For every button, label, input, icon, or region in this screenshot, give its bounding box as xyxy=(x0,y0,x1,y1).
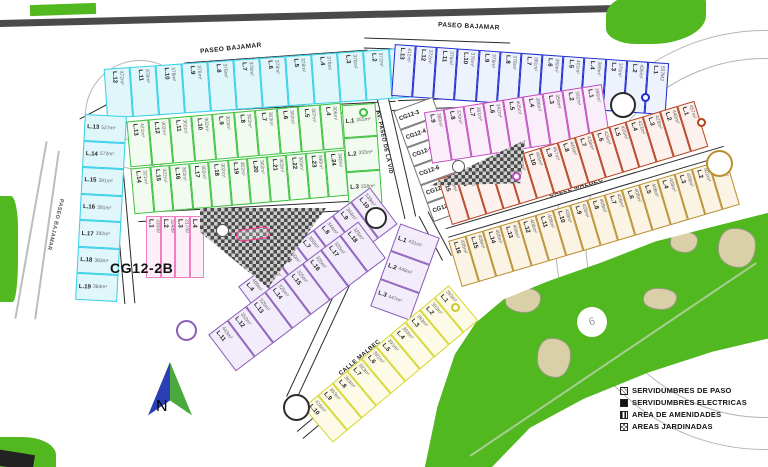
amenities-west-circle xyxy=(216,224,229,237)
lot-area: 378m² xyxy=(247,62,253,77)
lot-area: 302m² xyxy=(203,117,209,132)
lot-area: 391m² xyxy=(98,179,112,185)
lot-area: 380m² xyxy=(435,113,442,128)
lot-area: 370m² xyxy=(616,63,622,78)
marker-dot-yellow xyxy=(451,303,460,312)
sand-bunker-2 xyxy=(643,288,677,310)
lot-area: 378m² xyxy=(299,58,305,73)
lot-number: L.7 xyxy=(260,112,267,121)
legend-label: AREAS JARDINADAS xyxy=(632,422,713,431)
lot-number: L.2 xyxy=(162,219,168,228)
lot-area: 381m² xyxy=(532,57,538,72)
lot-area: 340m² xyxy=(336,153,342,168)
lot-number: L.11 xyxy=(174,120,181,132)
lot-area: 361m² xyxy=(475,107,482,122)
lot: L.1557M2 xyxy=(644,62,669,115)
lot-number: L.10 xyxy=(163,67,170,79)
lot: L.3317m² xyxy=(175,216,190,278)
culdesac-malbec-east xyxy=(706,150,733,177)
hatch-vertical-swatch-icon xyxy=(620,411,628,419)
north-arrow-right-blade xyxy=(170,362,192,424)
lot: L.11378m² xyxy=(130,65,159,117)
lot-number: L.9 xyxy=(189,66,196,75)
lot-number: L.3 xyxy=(176,219,182,228)
lot-area: 383m² xyxy=(94,258,108,264)
lot: L.14572m² xyxy=(82,141,125,170)
culdesac-pinot-west xyxy=(176,320,197,341)
lot-area: 302m² xyxy=(245,114,251,129)
lot-area: 355m² xyxy=(359,151,374,157)
lot-area: 389m² xyxy=(595,61,601,76)
lot-number: L.16 xyxy=(83,204,95,211)
golf-hole-number: 6 xyxy=(587,315,597,328)
lot: L.3378m² xyxy=(337,51,366,103)
block-green-east-column: L.1355m²L.2355m²L.3356m² xyxy=(342,103,383,205)
lot-number: L.17 xyxy=(81,231,93,238)
lot-number: L.9 xyxy=(217,116,224,125)
marker-dot-green xyxy=(359,108,368,117)
north-arrow-letter: N xyxy=(156,398,168,416)
lot-number: L.4 xyxy=(191,219,197,228)
lot-number: L.5 xyxy=(567,59,574,68)
lot-number: L.21 xyxy=(271,159,278,171)
lot-area: 376m² xyxy=(222,63,228,78)
lot: L.4306m² xyxy=(319,103,344,151)
lot-number: L.22 xyxy=(290,157,297,169)
lot-number: L.3 xyxy=(610,62,617,71)
golf-hole-marker: 6 xyxy=(577,307,607,337)
marker-dot-magenta xyxy=(512,172,521,181)
lot-area: 457m² xyxy=(687,104,696,119)
lot-number: L.12 xyxy=(419,49,426,61)
lot-area: 307m² xyxy=(310,108,316,123)
lot-number: L.12 xyxy=(111,71,118,83)
lot-number: L.15 xyxy=(154,169,161,181)
lot-number: L.11 xyxy=(441,50,448,62)
legend-item: AREA DE AMENIDADES xyxy=(620,410,766,419)
sand-bunker-3 xyxy=(537,338,571,378)
lot-number: L.23 xyxy=(310,155,317,167)
lot-number: L.1 xyxy=(147,219,153,228)
lot-number: L.13 xyxy=(398,47,405,59)
lot-number: L.11 xyxy=(137,69,144,81)
lot-area: 340m² xyxy=(317,155,323,170)
lot-area: 370m² xyxy=(455,110,462,125)
solid-black-swatch-icon xyxy=(620,399,628,407)
lot-area: 392m² xyxy=(574,91,581,106)
lot-number: L.2 xyxy=(631,64,638,73)
legend-item: SERVIDUMBRES ELECTRICAS xyxy=(620,398,766,407)
lot-area: 355m² xyxy=(356,117,371,123)
lot-area: 557M2 xyxy=(658,66,664,82)
legend-item: SERVIDUMBRES DE PASO xyxy=(620,386,766,395)
lot-number: L.18 xyxy=(212,164,219,176)
lot-area: 392m² xyxy=(95,232,109,238)
lot-number: L.16 xyxy=(173,167,180,179)
lot-area: 408m² xyxy=(685,173,694,188)
lot-area: 408m² xyxy=(580,204,589,219)
lot-number: L.14 xyxy=(86,151,98,158)
lot-number: L.14 xyxy=(134,171,141,183)
left-road-curb-2 xyxy=(34,151,59,320)
lot-area: 401m² xyxy=(574,60,580,75)
lot: L.4378m² xyxy=(311,53,340,105)
lot-area: 302m² xyxy=(180,167,186,182)
left-road-curb-1 xyxy=(14,141,47,319)
legend-item: AREAS JARDINADAS xyxy=(620,422,766,431)
lot-area: 303m² xyxy=(267,112,273,127)
street-label-paseo-bajamar-2: PASEO BAJAMAR xyxy=(438,21,500,31)
lot-number: L.10 xyxy=(462,52,469,64)
lot-area: 302m² xyxy=(219,163,225,178)
lot-area: 372m² xyxy=(118,71,124,86)
lot-number: CG12-3 xyxy=(398,109,420,122)
legend-label: SERVIDUMBRES ELECTRICAS xyxy=(632,398,747,407)
lot-area: 408m² xyxy=(667,178,676,193)
lot-number: L.4 xyxy=(589,61,596,70)
lot-area: 372m² xyxy=(377,52,383,67)
lot-number: L.4 xyxy=(318,57,325,66)
lot-number: L.7 xyxy=(525,56,532,65)
lot-area: 421m² xyxy=(138,123,144,138)
lot-number: L.3 xyxy=(377,291,387,300)
lot-area: 572m² xyxy=(100,152,114,158)
lot-number: L.19 xyxy=(232,162,239,174)
lot-area: 431m² xyxy=(407,240,422,250)
lot-area: 376m² xyxy=(196,65,202,80)
top-road xyxy=(0,4,660,27)
lot-area: 303m² xyxy=(224,115,230,130)
lot: L.7378m² xyxy=(233,58,262,110)
lot-number: L.10 xyxy=(196,118,203,130)
lot-area: 302m² xyxy=(200,165,206,180)
lot-area: 408m² xyxy=(615,193,624,208)
lot-number: L.5 xyxy=(303,109,310,118)
lot-number: L.8 xyxy=(215,64,222,73)
lot-area: 322m² xyxy=(161,168,167,183)
lot-number: L.6 xyxy=(546,58,553,67)
lot-number: L.5 xyxy=(292,58,299,67)
marker-dot-blue xyxy=(641,93,650,102)
lot-area: 405m² xyxy=(514,100,521,115)
lot-area: 302m² xyxy=(239,162,245,177)
green-strip-left xyxy=(0,196,18,302)
lot-area: 324m² xyxy=(169,219,174,233)
lot-area: 386m² xyxy=(534,97,541,112)
lot-number: L.8 xyxy=(238,114,245,123)
legend-label: AREA DE AMENIDADES xyxy=(632,410,721,419)
lot-area: 306m² xyxy=(331,106,337,121)
lot-area: 527m² xyxy=(101,126,115,132)
lot: L.19384m² xyxy=(75,273,118,302)
lot-number: L.18 xyxy=(80,257,92,264)
lot-number: L.13 xyxy=(87,124,99,131)
lot-number: L.20 xyxy=(251,160,258,172)
lot-number: L.6 xyxy=(266,60,273,69)
amenities-area-center-circle xyxy=(452,160,465,173)
lot-number: L.13 xyxy=(131,124,138,136)
lot-area: 342m² xyxy=(495,103,502,118)
lot: L.15391m² xyxy=(81,167,124,196)
lot: L.9376m² xyxy=(181,62,210,114)
lot: L.13527m² xyxy=(84,114,127,143)
junction-circle-vid-syrah xyxy=(365,207,387,229)
lot-number: L.2 xyxy=(348,151,357,158)
lot-number: L.8 xyxy=(504,55,511,64)
sand-bunker-5 xyxy=(718,228,756,268)
lot-number: L.15 xyxy=(84,178,96,185)
lot-number: L.2 xyxy=(370,53,377,62)
lot-number: CG12-4 xyxy=(405,128,427,141)
lot-area: 447m² xyxy=(387,295,402,305)
lot-area: 412m² xyxy=(405,48,411,63)
lot-number: L.2 xyxy=(387,263,397,272)
lot-area: 378m² xyxy=(170,67,176,82)
lot-area: 317m² xyxy=(183,219,188,233)
lot-number: L.1 xyxy=(397,235,407,244)
marker-dot-orange xyxy=(697,118,706,127)
lot: L.2372m² xyxy=(363,49,392,101)
lot-number: L.24 xyxy=(329,154,336,166)
lot-area: 390m² xyxy=(593,88,600,103)
hatch-diagonal-swatch-icon xyxy=(620,387,628,395)
lot-number: L.7 xyxy=(241,62,248,71)
street-label-paseo-bajamar-1: PASEO BAJAMAR xyxy=(200,42,262,55)
lot-number: L.17 xyxy=(193,165,200,177)
culdesac-syrah-south xyxy=(283,394,310,421)
lot-area: 448m² xyxy=(397,267,412,277)
lot-area: 408m² xyxy=(650,183,659,198)
lot-area: 350m² xyxy=(554,94,561,109)
lot-area: 302m² xyxy=(288,110,294,125)
lot-number: CG12-6 xyxy=(419,165,441,178)
legend: SERVIDUMBRES DE PASO SERVIDUMBRES ELECTR… xyxy=(620,386,766,434)
green-area-top-right xyxy=(606,0,706,44)
lot-area: 302m² xyxy=(181,119,187,134)
green-strip-top-left xyxy=(30,3,96,16)
lot-area: 408m² xyxy=(598,198,607,213)
lot-number: L.19 xyxy=(79,284,91,291)
lot: L.6378m² xyxy=(259,56,288,108)
lot-number: L.9 xyxy=(483,53,490,62)
legend-label: SERVIDUMBRES DE PASO xyxy=(632,386,732,395)
lot-area: 302m² xyxy=(258,160,264,175)
lot-area: 378m² xyxy=(490,54,496,69)
lot-area: 378m² xyxy=(144,69,150,84)
lot-number: L.4 xyxy=(324,107,331,116)
lot-area: 435m² xyxy=(637,64,643,79)
lot-number: L.1 xyxy=(345,118,354,125)
lot-area: 302m² xyxy=(160,121,166,136)
lot-area: 408m² xyxy=(632,188,641,203)
lot-area: 391m² xyxy=(97,205,111,211)
lot-number: L.3 xyxy=(344,55,351,64)
lot: L.17392m² xyxy=(78,220,121,249)
site-plan-canvas: PASEO BAJAMAR PASEO BAJAMAR PASEO BAJAMA… xyxy=(0,0,768,467)
lot-area: 378m² xyxy=(351,54,357,69)
lot: L.5378m² xyxy=(285,54,314,106)
lot-area: 390m² xyxy=(553,58,559,73)
lot-number: L.6 xyxy=(281,110,288,119)
lot: L.12372m² xyxy=(104,67,133,119)
lot: L.2355m² xyxy=(344,136,380,172)
culdesac-nebbiolo-east xyxy=(610,92,636,118)
lot-area: 330m² xyxy=(154,219,159,233)
lot-area: 303m² xyxy=(297,156,303,171)
lot-number: L.12 xyxy=(153,122,160,134)
north-arrow: N xyxy=(148,362,192,424)
lot: L.10378m² xyxy=(156,64,185,116)
lot-area: 384m² xyxy=(93,285,107,291)
lot-area: 376m² xyxy=(468,52,474,67)
lot-area: 321m² xyxy=(141,170,147,185)
lot: L.16391m² xyxy=(79,194,122,223)
lot-area: 378m² xyxy=(325,56,331,71)
lot-area: 376m² xyxy=(447,51,453,66)
lot-area: 378m² xyxy=(511,55,517,70)
site-code-label: CG12-2B xyxy=(110,260,173,276)
sand-bunker-1 xyxy=(505,287,541,313)
lot-area: 303m² xyxy=(278,158,284,173)
lot-number: L.1 xyxy=(652,65,659,74)
checker-swatch-icon xyxy=(620,423,628,431)
lot-area: 372m² xyxy=(426,49,432,64)
lot-number: L.3 xyxy=(350,185,359,192)
lot: L.8376m² xyxy=(207,60,236,112)
lot-area: 378m² xyxy=(273,60,279,75)
